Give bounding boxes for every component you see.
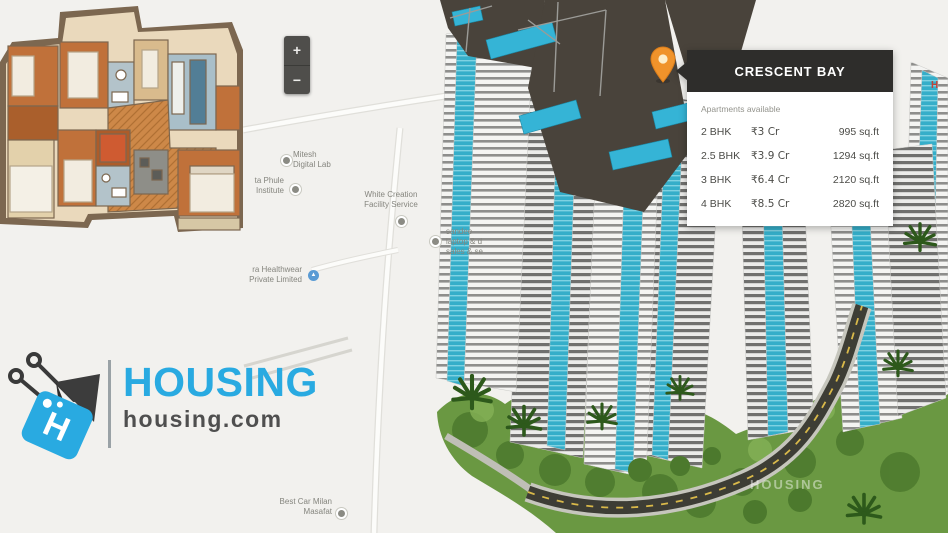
apartment-row: 2.5 BHK ₹3.9 Cr 1294 sq.ft xyxy=(701,150,879,162)
bhk-type: 2.5 BHK xyxy=(701,150,751,162)
map-roads xyxy=(243,96,446,533)
map-label-digital-lab: Mitesh Digital Lab xyxy=(293,150,331,170)
mountain-poi-icon: ▲ xyxy=(308,270,319,281)
popup-pointer-icon xyxy=(676,61,688,81)
map-label-sandeep-laptop: sandee laptop & d sales & se xyxy=(446,227,483,257)
floor-plan-thumbnail xyxy=(0,6,243,232)
map-zoom-control: + − xyxy=(284,36,310,94)
availability-subtitle: Apartments available xyxy=(701,104,879,114)
brand-domain: housing.com xyxy=(123,406,318,433)
map-canvas: + − Mitesh Digital Lab ta Phule Institut… xyxy=(0,0,948,533)
bhk-type: 4 BHK xyxy=(701,198,751,210)
housing-logo: H HOUSING housing.com xyxy=(4,348,318,460)
bhk-type: 3 BHK xyxy=(701,174,751,186)
map-label-best-car: Best Car Milan Masafat xyxy=(270,497,332,517)
map-label-phule-institute: ta Phule Institute xyxy=(232,176,284,196)
logo-text: HOUSING housing.com xyxy=(123,348,318,433)
map-label-white-creation: White Creation Facility Service xyxy=(358,190,424,210)
property-title: CRESCENT BAY xyxy=(735,64,846,79)
housing-watermark: HOUSING xyxy=(750,477,825,492)
poi-dot-icon xyxy=(281,155,292,166)
price: ₹3.9 Cr xyxy=(751,150,817,162)
poi-dot-icon xyxy=(336,508,347,519)
price: ₹3 Cr xyxy=(751,126,817,138)
area: 1294 sq.ft xyxy=(833,150,879,162)
hospital-marker-icon: H xyxy=(931,80,938,91)
brand-name: HOUSING xyxy=(123,362,318,403)
zoom-in-button[interactable]: + xyxy=(284,36,310,65)
popup-body: Apartments available 2 BHK ₹3 Cr 995 sq.… xyxy=(687,92,893,226)
property-pin-icon[interactable] xyxy=(650,46,676,84)
apartment-row: 2 BHK ₹3 Cr 995 sq.ft xyxy=(701,126,879,138)
price: ₹6.4 Cr xyxy=(751,174,817,186)
area: 2120 sq.ft xyxy=(833,174,879,186)
poi-dot-icon xyxy=(290,184,301,195)
property-info-popup: CRESCENT BAY Apartments available 2 BHK … xyxy=(687,50,893,226)
poi-dot-icon xyxy=(430,236,441,247)
area: 2820 sq.ft xyxy=(833,198,879,210)
bhk-type: 2 BHK xyxy=(701,126,751,138)
apartment-row: 3 BHK ₹6.4 Cr 2120 sq.ft xyxy=(701,174,879,186)
popup-header: CRESCENT BAY xyxy=(687,50,893,92)
apartment-row: 4 BHK ₹8.5 Cr 2820 sq.ft xyxy=(701,198,879,210)
map-label-healthwear: ra Healthwear Private Limited xyxy=(248,265,302,285)
price: ₹8.5 Cr xyxy=(751,198,817,210)
logo-divider xyxy=(108,360,111,448)
housing-tag-icon: H xyxy=(4,348,108,460)
area: 995 sq.ft xyxy=(839,126,879,138)
zoom-out-button[interactable]: − xyxy=(284,65,310,95)
poi-dot-icon xyxy=(396,216,407,227)
